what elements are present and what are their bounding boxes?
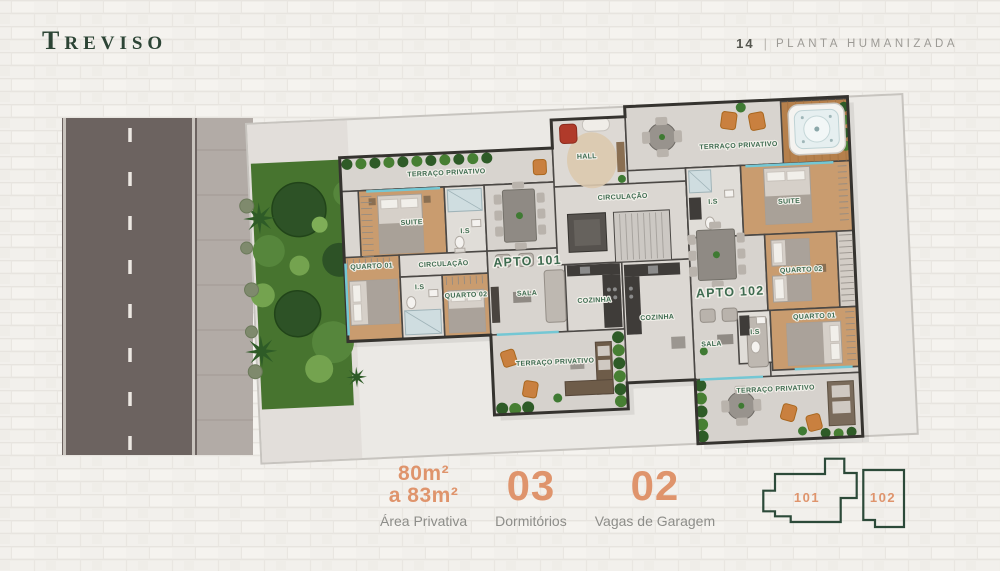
label-living-101: SALA [517, 290, 538, 298]
street [62, 118, 253, 455]
suite-102-bed [764, 166, 812, 224]
page-info: 14 | PLANTA HUMANIZADA [736, 36, 958, 51]
logo-initial: T [42, 26, 64, 55]
treviso-logo: TREVISO [42, 26, 167, 56]
label-suite-101: SUITE [400, 219, 422, 227]
bedrooms-value: 03 [507, 463, 556, 509]
page-number: 14 [736, 36, 754, 51]
bedrooms-label: Dormitórios [495, 513, 567, 529]
stat-private-area: 80m² a 83m² Área Privativa [380, 463, 467, 529]
label-bath-suite-101: I.S [460, 228, 470, 235]
keyplan-label-102: 102 [870, 490, 896, 505]
separator: | [764, 36, 767, 51]
page-title: PLANTA HUMANIZADA [776, 38, 958, 50]
parking-value: 02 [631, 463, 680, 509]
site: TERRAÇO PRIVATIVO SUITE I.S CIRCULAÇÃO Q… [235, 94, 918, 470]
label-bath-suite-102: I.S [708, 199, 718, 206]
area-label: Área Privativa [380, 513, 467, 529]
stairs [613, 210, 671, 262]
stat-parking: 02 Vagas de Garagem [595, 463, 715, 529]
label-suite-102: SUITE [778, 198, 800, 206]
sidewalk [197, 118, 253, 455]
stats-bar: 80m² a 83m² Área Privativa 03 Dormitório… [380, 463, 715, 529]
logo-rest: REVISO [64, 33, 167, 54]
label-hall: HALL [577, 153, 598, 161]
area-value-line1: 80m² [389, 463, 459, 485]
key-plan: 101 102 [760, 453, 910, 538]
area-value-line2: a 83m² [389, 485, 459, 507]
brochure-page: TREVISO 14 | PLANTA HUMANIZADA [0, 0, 1000, 571]
jacuzzi [788, 103, 846, 155]
bedroom1-102-bed [787, 321, 843, 365]
elevator [567, 213, 607, 253]
label-bath-102: I.S [750, 329, 760, 336]
keyplan-label-101: 101 [794, 490, 820, 505]
stat-bedrooms: 03 Dormitórios [495, 463, 567, 529]
label-living-102: SALA [701, 341, 722, 349]
bedroom1-101-bed [349, 279, 399, 325]
label-bath-101: I.S [415, 284, 425, 291]
parking-label: Vagas de Garagem [595, 513, 715, 529]
